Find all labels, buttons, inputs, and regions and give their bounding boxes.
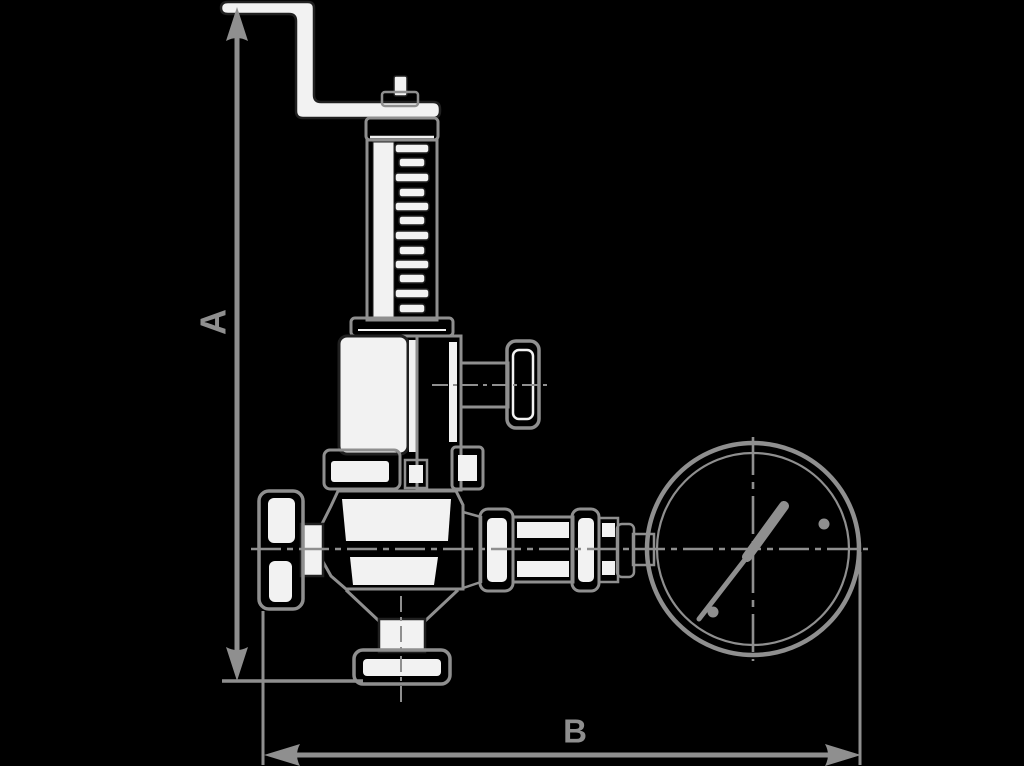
- lower-housing: [339, 336, 408, 454]
- valve-assembly: [259, 76, 551, 702]
- valve-body: [322, 491, 463, 589]
- spring-coils: [395, 144, 429, 313]
- arrowhead-left-icon: [264, 744, 300, 766]
- gauge-nut: [617, 524, 634, 577]
- dimension-b-label: B: [563, 713, 587, 750]
- arrowhead-right-icon: [825, 744, 861, 766]
- technical-drawing-canvas: A B: [0, 0, 1024, 766]
- drain-outlet: [346, 590, 458, 702]
- gauge-dial-dot-right: [819, 519, 830, 530]
- gauge-dial-dot-left: [708, 607, 719, 618]
- dimension-a-label: A: [193, 309, 234, 335]
- gauge-needle: [699, 506, 784, 619]
- release-lever: [221, 2, 440, 118]
- arrowhead-down-icon: [226, 647, 248, 681]
- safety-valve-with-gauge-drawing: A B: [0, 0, 1024, 766]
